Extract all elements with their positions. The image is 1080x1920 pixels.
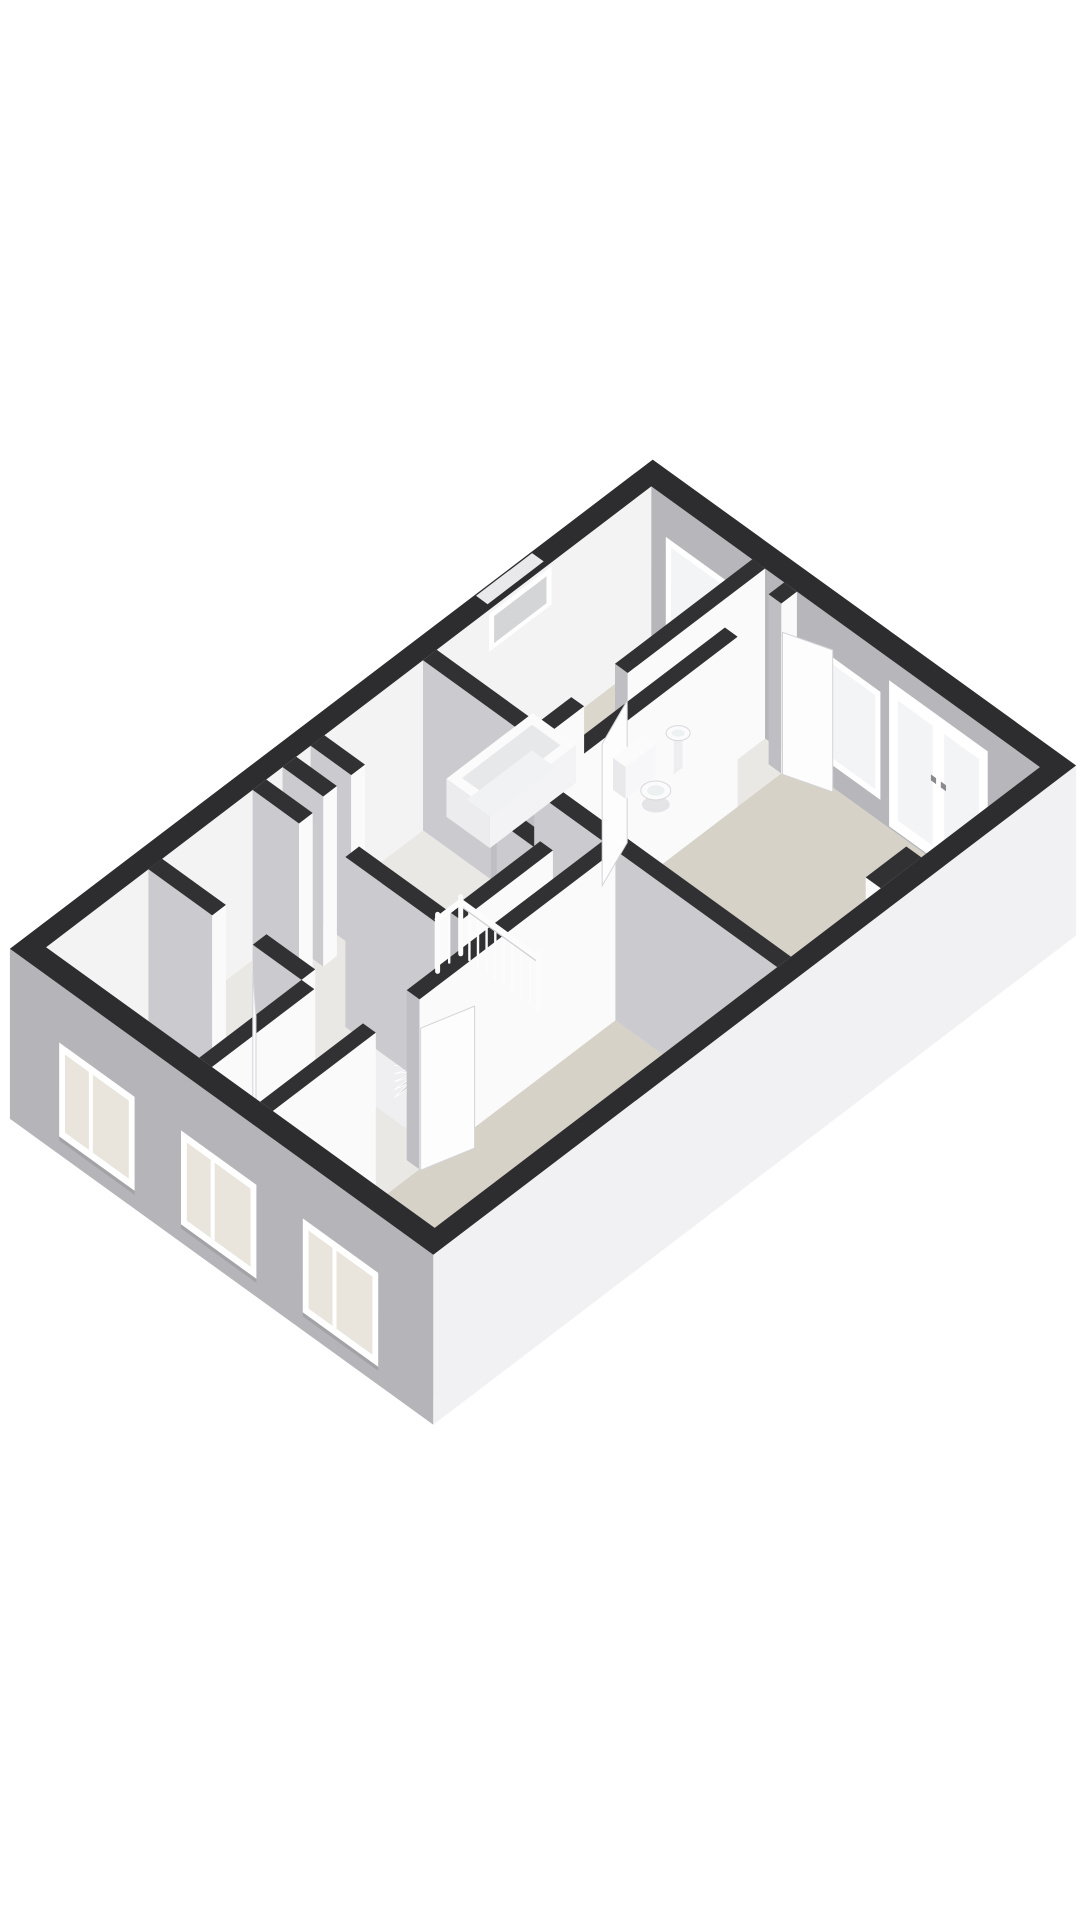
right-bedroom-door-leaf: [783, 632, 833, 792]
floor-plan-3d-render: [0, 0, 1080, 1920]
bottom-bedroom-door-leaf: [421, 1006, 475, 1170]
floor-plan-page: [0, 0, 1080, 1920]
